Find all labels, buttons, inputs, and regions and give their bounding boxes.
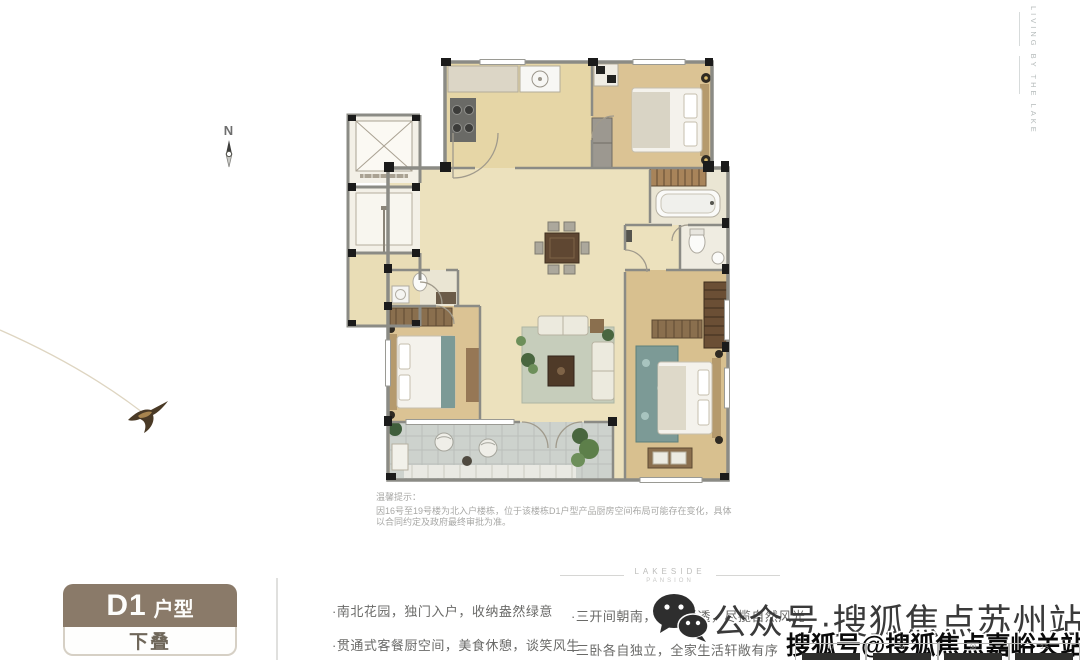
table-cell: 37 [795,644,866,660]
bathroom-tub [656,190,720,217]
compass-north-label: N [218,123,240,138]
table-cell: 38 [938,644,1009,660]
table-cell: 36 [866,644,937,660]
living-room [516,316,614,403]
cell-value: 38 [939,644,1008,652]
vertical-branding: LIVING BY THE LAKE [1019,6,1038,124]
compass: N [218,123,240,174]
cell-fill [1015,653,1073,660]
floor-plan [340,58,740,490]
lakeside-title: LAKESIDE [634,567,705,576]
lakeside-divider: LAKESIDE PANSION [560,567,780,584]
vertical-branding-text: LIVING BY THE LAKE [1029,6,1038,135]
cell-value: 36 [867,644,936,652]
cell-fill [802,653,860,660]
section-divider-vertical [276,578,278,660]
notice-body: 因16号至19号楼为北入户楼栋，位于该楼栋D1户型产品厨房空间布局可能存在变化，… [376,506,738,529]
feature-item: ·贯通式客餐厨空间，美食休憩，谈笑风生 [332,635,580,654]
lakeside-subtitle: PANSION [634,578,705,584]
cell-fill [873,653,931,660]
page: N [0,0,1080,660]
divider-line-right [716,575,780,576]
unit-code: D1 [106,589,146,623]
stairs [650,168,706,186]
cell-value: 37 [796,644,865,652]
feature-list-left: ·南北花园，独门入户，收纳盎然绿意 ·贯通式客餐厨空间，美食休憩，谈笑风生 [332,601,580,660]
table-cell: 3.5 [1009,644,1080,660]
bird-illustration [124,398,170,436]
unit-badge-subtitle: 下叠 [63,627,237,656]
clipped-area-table: 37 36 38 3.5 [795,643,1080,660]
feature-item: ·南北花园，独门入户，收纳盎然绿意 [332,601,580,620]
wechat-icon [650,592,712,642]
unit-badge-title: D1 户型 [63,584,237,627]
unit-type-label: 户型 [154,593,194,622]
notice-title: 温馨提示： [376,492,738,504]
vertical-branding-deco [1019,12,1020,94]
divider-line-left [560,575,624,576]
notice-block: 温馨提示： 因16号至19号楼为北入户楼栋，位于该楼栋D1户型产品厨房空间布局可… [376,492,738,529]
cell-value: 3.5 [1010,644,1079,652]
compass-needle-icon [222,139,236,169]
cell-fill [944,653,1002,660]
unit-badge: D1 户型 下叠 [63,584,237,656]
